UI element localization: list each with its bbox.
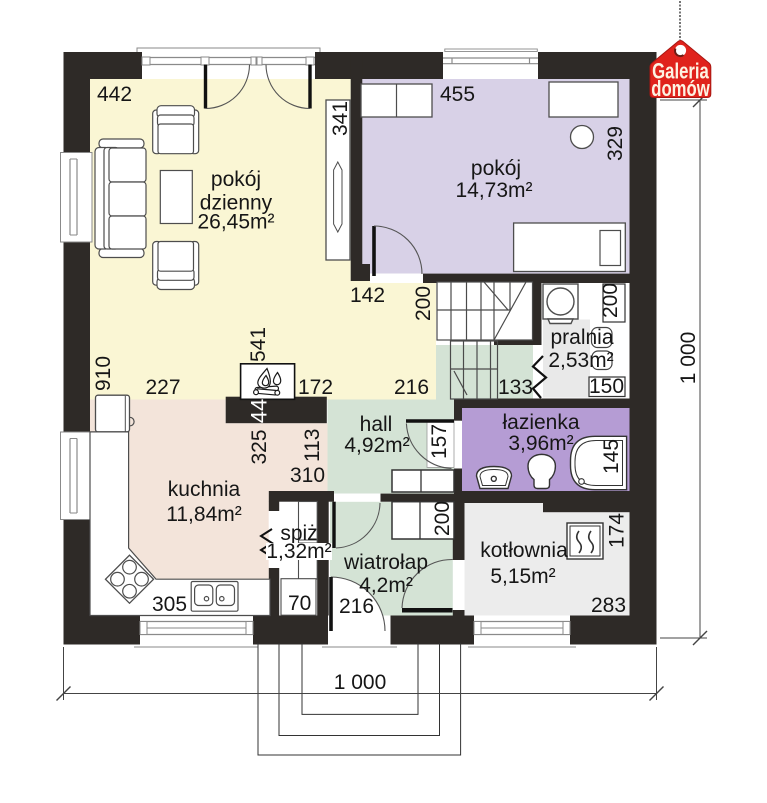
svg-text:wiatrołap: wiatrołap [343,551,428,574]
svg-text:216: 216 [339,595,374,618]
svg-text:227: 227 [146,376,181,399]
svg-text:200: 200 [431,501,454,536]
svg-text:11,84m²: 11,84m² [166,503,241,526]
svg-text:kotłownia: kotłownia [480,539,568,562]
svg-text:2,53m²: 2,53m² [548,349,613,372]
svg-text:442: 442 [97,83,132,106]
svg-text:26,45m²: 26,45m² [197,211,274,234]
svg-text:172: 172 [298,376,333,399]
svg-text:150: 150 [589,375,624,398]
svg-text:5,15m²: 5,15m² [490,565,555,588]
svg-text:1 000: 1 000 [334,671,387,694]
svg-text:1,32m²: 1,32m² [266,540,331,563]
svg-text:541: 541 [247,327,270,362]
svg-text:133: 133 [498,376,533,399]
svg-text:domów: domów [651,77,710,102]
svg-text:157: 157 [428,424,451,459]
svg-text:kuchnia: kuchnia [168,478,241,501]
svg-text:174: 174 [606,513,629,548]
svg-text:145: 145 [600,439,623,474]
svg-text:283: 283 [591,594,626,617]
svg-text:341: 341 [329,101,352,136]
svg-text:łazienka: łazienka [502,411,579,434]
svg-text:329: 329 [604,126,627,161]
svg-text:142: 142 [350,284,385,307]
svg-text:325: 325 [248,429,271,464]
svg-text:44: 44 [247,399,272,423]
svg-text:pralnia: pralnia [550,326,613,349]
svg-text:113: 113 [301,429,324,462]
svg-text:hall: hall [360,413,393,436]
svg-text:4,2m²: 4,2m² [359,574,413,597]
svg-text:pokój: pokój [211,168,261,191]
svg-text:70: 70 [288,592,311,615]
svg-text:305: 305 [152,593,187,616]
svg-text:1 000: 1 000 [677,332,700,385]
svg-text:14,73m²: 14,73m² [455,179,532,202]
svg-text:200: 200 [412,286,435,321]
svg-text:pokój: pokój [471,157,521,180]
svg-text:455: 455 [440,83,475,106]
svg-text:200: 200 [599,283,622,318]
svg-text:3,96m²: 3,96m² [508,432,573,455]
svg-text:910: 910 [92,356,115,391]
svg-text:4,92m²: 4,92m² [344,434,409,457]
svg-text:216: 216 [394,376,429,399]
svg-text:310: 310 [290,464,325,487]
